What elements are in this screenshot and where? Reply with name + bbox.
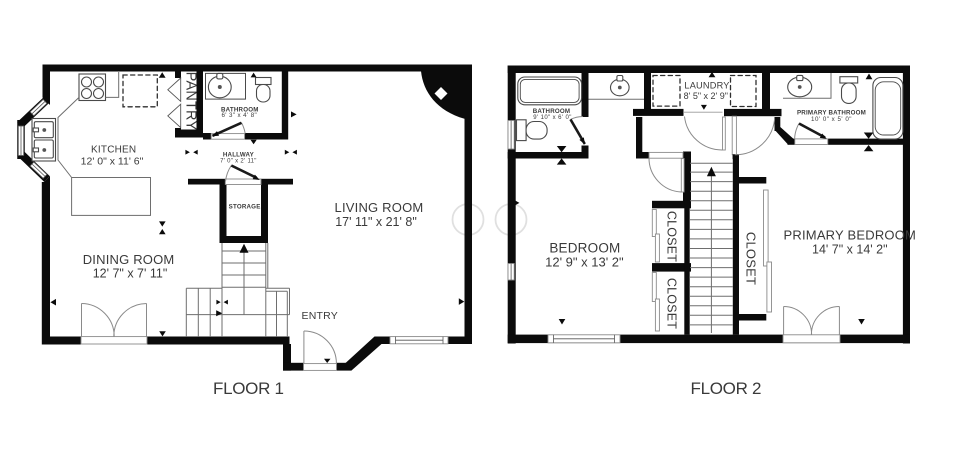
svg-text:STORAGE: STORAGE (229, 204, 261, 211)
svg-text:14' 7" x 14' 2": 14' 7" x 14' 2" (812, 243, 888, 257)
svg-text:FLOOR 2: FLOOR 2 (691, 379, 762, 398)
svg-text:17' 11" x 21' 8": 17' 11" x 21' 8" (335, 215, 417, 229)
svg-text:12' 9" x 13' 2": 12' 9" x 13' 2" (545, 255, 624, 270)
svg-text:BEDROOM: BEDROOM (549, 241, 620, 256)
svg-text:KITCHEN: KITCHEN (91, 145, 136, 156)
svg-text:ENTRY: ENTRY (302, 310, 338, 322)
svg-text:9' 10" x 6' 0": 9' 10" x 6' 0" (533, 115, 572, 121)
svg-text:PRIMARY BEDROOM: PRIMARY BEDROOM (784, 228, 917, 243)
svg-text:PANTRY: PANTRY (182, 72, 198, 131)
svg-text:HALLWAY: HALLWAY (223, 152, 255, 159)
svg-text:7' 0" x 2' 11": 7' 0" x 2' 11" (220, 159, 257, 165)
svg-text:FLOOR 1: FLOOR 1 (213, 379, 284, 398)
svg-text:8' 5" x 2' 9": 8' 5" x 2' 9" (684, 91, 728, 101)
svg-text:DINING ROOM: DINING ROOM (83, 252, 175, 267)
svg-text:CLOSET: CLOSET (743, 232, 758, 285)
svg-text:LIVING ROOM: LIVING ROOM (335, 200, 424, 215)
svg-text:12' 0" x 11' 6": 12' 0" x 11' 6" (81, 156, 144, 168)
svg-text:10' 0" x 5' 0": 10' 0" x 5' 0" (811, 116, 852, 123)
svg-text:6' 3" x 4' 8": 6' 3" x 4' 8" (221, 112, 257, 119)
svg-text:CLOSET: CLOSET (665, 278, 679, 329)
svg-text:CLOSET: CLOSET (665, 211, 679, 262)
svg-text:LAUNDRY: LAUNDRY (684, 81, 729, 91)
svg-text:BATHROOM: BATHROOM (533, 108, 571, 115)
svg-text:12' 7" x 7' 11": 12' 7" x 7' 11" (93, 267, 168, 281)
